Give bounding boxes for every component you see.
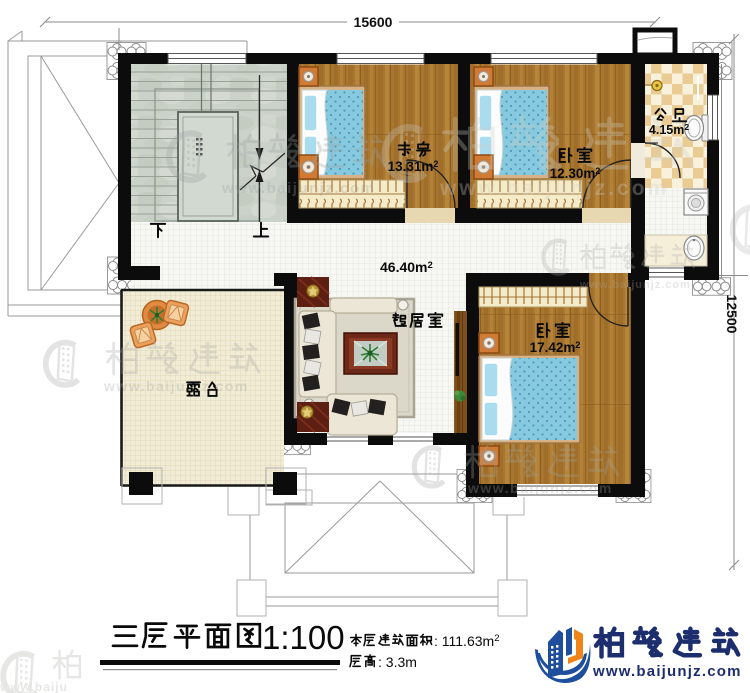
svg-text:13.31m2: 13.31m2 bbox=[388, 159, 439, 174]
svg-text:4.15m2: 4.15m2 bbox=[649, 122, 689, 137]
svg-text:17.42m2: 17.42m2 bbox=[530, 340, 581, 355]
svg-text:46.40m2: 46.40m2 bbox=[380, 259, 433, 275]
svg-text:12500: 12500 bbox=[724, 295, 740, 334]
svg-text:www.baijunjz.com: www.baijunjz.com bbox=[467, 480, 613, 496]
svg-text:www.baiju: www.baiju bbox=[0, 680, 68, 693]
svg-text:www.baijunjz.com: www.baijunjz.com bbox=[103, 378, 249, 394]
svg-text:: 3.3m: : 3.3m bbox=[378, 654, 417, 670]
svg-text:12.30m2: 12.30m2 bbox=[550, 166, 601, 181]
svg-text:: 111.63m2: : 111.63m2 bbox=[434, 633, 499, 649]
svg-text:www.baijunjz.com: www.baijunjz.com bbox=[579, 279, 691, 291]
svg-text:www.baijunjz.com: www.baijunjz.com bbox=[221, 180, 375, 197]
svg-text:www.baijunjz.com: www.baijunjz.com bbox=[592, 663, 742, 680]
svg-text:15600: 15600 bbox=[354, 14, 393, 30]
svg-text:1:100: 1:100 bbox=[262, 619, 345, 656]
